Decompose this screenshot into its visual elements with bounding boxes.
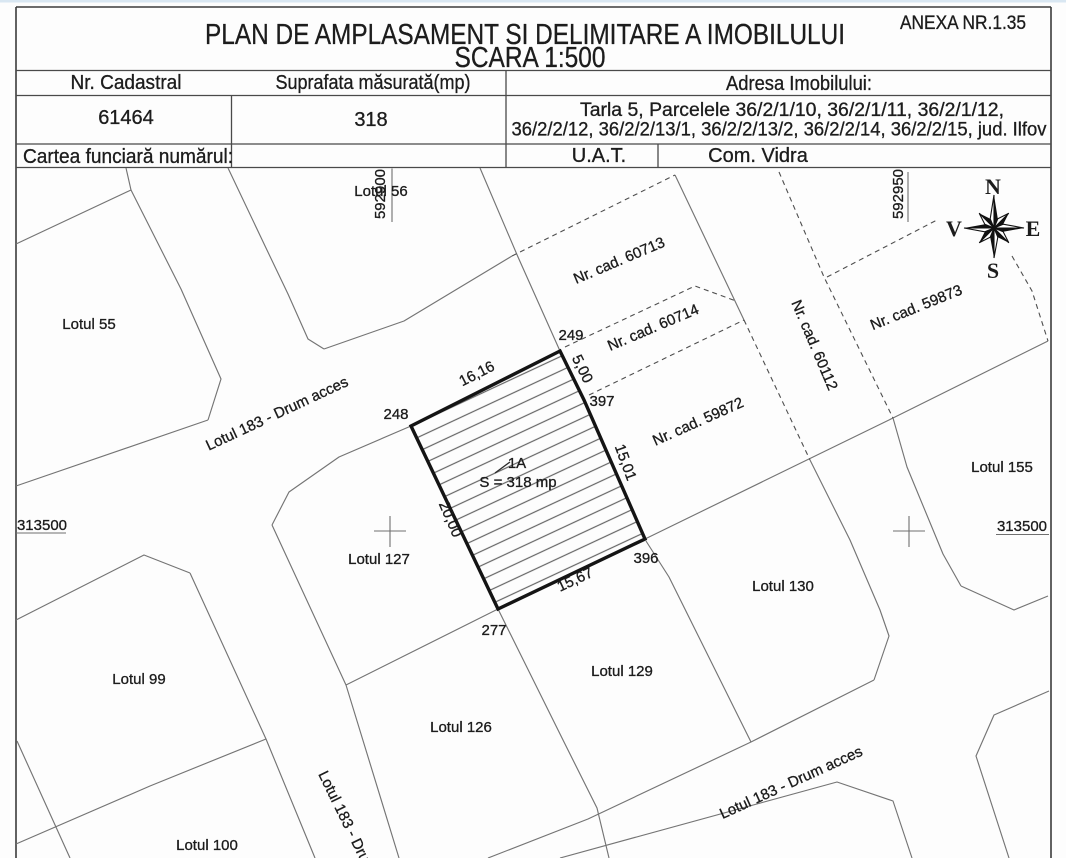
svg-text:E: E	[1026, 216, 1041, 241]
svg-text:ANEXA NR.1.35: ANEXA NR.1.35	[900, 13, 1026, 34]
svg-text:SCARA 1:500: SCARA 1:500	[455, 42, 606, 74]
svg-text:S: S	[987, 258, 999, 283]
svg-text:248: 248	[383, 406, 408, 423]
svg-text:61464: 61464	[98, 107, 154, 129]
svg-text:Lotul 183 - Drum acces: Lotul 183 - Drum acces	[203, 373, 351, 454]
svg-text:Nr. cad. 60714: Nr. cad. 60714	[605, 301, 701, 355]
svg-text:Cartea funciară numărul:: Cartea funciară numărul:	[23, 146, 233, 168]
svg-text:Lotul 155: Lotul 155	[971, 459, 1033, 476]
svg-text:S = 318 mp: S = 318 mp	[479, 474, 556, 491]
svg-text:Adresa Imobilului:: Adresa Imobilului:	[726, 73, 872, 95]
svg-text:313500: 313500	[997, 518, 1047, 535]
svg-text:592950: 592950	[890, 169, 907, 219]
svg-text:Nr. cad. 60112: Nr. cad. 60112	[787, 298, 840, 393]
svg-text:Lotul 99: Lotul 99	[112, 671, 165, 688]
svg-text:Nr. cad. 59873: Nr. cad. 59873	[868, 282, 965, 334]
svg-text:Nr. cad. 60713: Nr. cad. 60713	[571, 234, 667, 288]
svg-text:592900: 592900	[372, 169, 389, 219]
svg-text:Tarla 5, Parcelele 36/2/1/10,: Tarla 5, Parcelele 36/2/1/10, 36/2/1/11,…	[580, 100, 1004, 121]
svg-text:318: 318	[354, 109, 387, 131]
svg-text:Lotul 127: Lotul 127	[348, 551, 410, 568]
svg-text:Lotul 129: Lotul 129	[591, 663, 653, 680]
svg-text:Nr. cad. 59872: Nr. cad. 59872	[650, 394, 746, 449]
svg-text:Lotul 183 - Drum acces: Lotul 183 - Drum acces	[717, 743, 865, 823]
svg-text:1A: 1A	[508, 455, 526, 472]
svg-text:249: 249	[558, 327, 583, 344]
svg-text:Lotul 130: Lotul 130	[752, 578, 814, 595]
svg-text:U.A.T.: U.A.T.	[572, 145, 626, 167]
svg-text:277: 277	[481, 622, 506, 639]
svg-text:Lotul 126: Lotul 126	[430, 719, 492, 736]
svg-text:Nr. Cadastral: Nr. Cadastral	[71, 72, 182, 94]
svg-text:313500: 313500	[17, 517, 67, 534]
svg-text:Lotul 100: Lotul 100	[176, 837, 238, 854]
svg-text:V: V	[946, 216, 962, 241]
svg-text:397: 397	[589, 393, 614, 410]
svg-text:Lotul 55: Lotul 55	[62, 316, 115, 333]
svg-text:396: 396	[633, 550, 658, 567]
svg-text:Suprafata măsurată(mp): Suprafata măsurată(mp)	[276, 72, 471, 94]
svg-text:Com. Vidra: Com. Vidra	[708, 145, 809, 167]
svg-text:36/2/2/12, 36/2/2/13/1, 36/2/2: 36/2/2/12, 36/2/2/13/1, 36/2/2/13/2, 36/…	[512, 120, 1047, 141]
svg-text:N: N	[985, 174, 1001, 199]
